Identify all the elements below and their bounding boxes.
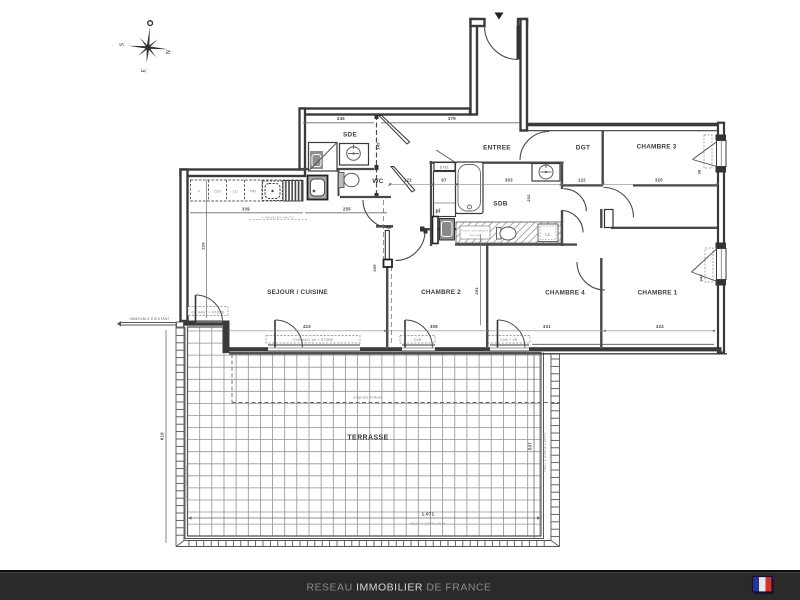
svg-text:245: 245 [337,116,345,121]
svg-text:CVB + VR: CVB + VR [500,338,517,342]
svg-text:RESEAU IMMOBILIER DE FRANCE: RESEAU IMMOBILIER DE FRANCE [306,582,491,594]
svg-text:LL: LL [545,232,551,237]
svg-text:pl: pl [436,209,441,215]
svg-text:339: 339 [242,206,250,211]
svg-text:122: 122 [404,178,412,183]
svg-text:145: 145 [376,142,381,150]
svg-text:F: F [198,190,200,194]
svg-text:CVB MAXI 1m + STORE: CVB MAXI 1m + STORE [293,338,334,342]
svg-text:HAUT 1 GARDE CORPS: HAUT 1 GARDE CORPS [186,465,190,504]
svg-text:67: 67 [441,178,447,183]
svg-text:WC: WC [372,178,383,185]
svg-text:122: 122 [578,178,586,183]
svg-text:303: 303 [505,178,513,183]
svg-text:VASQUE: VASQUE [470,234,481,237]
svg-text:emprise toiture: emprise toiture [353,396,383,400]
svg-text:229: 229 [201,242,206,250]
svg-text:ENTREE: ENTREE [483,145,511,152]
svg-text:1.071: 1.071 [422,512,435,517]
svg-text:343: 343 [699,274,704,282]
svg-text:CHAMBRE 4: CHAMBRE 4 [545,290,585,297]
svg-text:HAUT 1 GARDE CORPS: HAUT 1 GARDE CORPS [543,432,547,471]
svg-text:537: 537 [528,442,533,450]
svg-text:CHAMBRE 1: CHAMBRE 1 [638,290,678,297]
svg-text:379: 379 [448,116,456,121]
svg-text:ETEL: ETEL [440,166,449,170]
svg-text:CHAMBRE 2: CHAMBRE 2 [421,289,461,296]
svg-text:309: 309 [430,324,438,329]
svg-text:255: 255 [343,206,351,211]
svg-text:appui + garde corps: appui + garde corps [410,522,446,526]
svg-text:320: 320 [655,178,663,183]
svg-text:209: 209 [372,264,377,272]
svg-text:TRI: TRI [250,190,256,194]
svg-text:232: 232 [526,194,531,202]
svg-text:CHAMBRE 3: CHAMBRE 3 [637,144,677,151]
svg-text:IMMEUBLE EXISTANT: IMMEUBLE EXISTANT [130,317,170,321]
svg-text:331: 331 [543,324,551,329]
svg-text:324: 324 [656,324,664,329]
svg-text:LC: LC [233,190,238,194]
svg-text:423: 423 [303,324,311,329]
svg-text:N: N [165,49,172,55]
svg-text:SDB: SDB [493,201,507,208]
svg-text:DGT: DGT [576,145,590,152]
svg-text:E: E [140,68,147,73]
svg-text:CVB: CVB [414,338,421,342]
svg-text:GF HAUT + STORE: GF HAUT + STORE [192,310,225,314]
svg-text:293: 293 [474,287,479,295]
svg-text:38: 38 [698,170,702,175]
svg-text:TERRASSE: TERRASSE [347,435,388,442]
svg-text:SDE: SDE [343,132,357,139]
svg-text:PORTE SUR MEUBLE: PORTE SUR MEUBLE [461,231,488,233]
svg-text:CUI: CUI [214,190,221,194]
svg-text:619: 619 [160,432,165,440]
svg-text:+ MEUBLES HAUTS: + MEUBLES HAUTS [262,216,294,220]
svg-text:SEJOUR / CUISINE: SEJOUR / CUISINE [267,289,328,296]
